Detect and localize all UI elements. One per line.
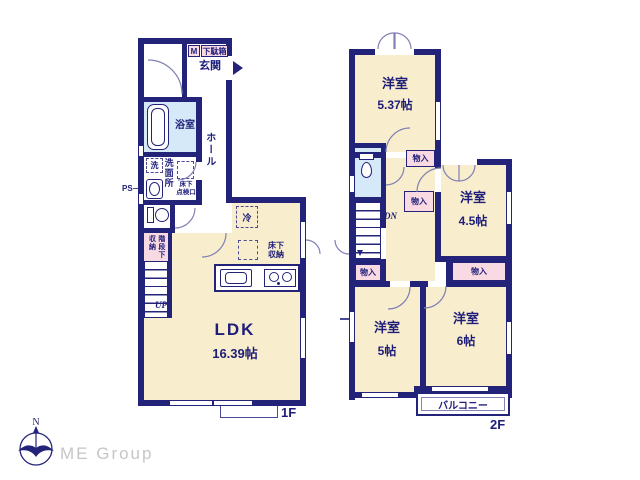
stove-knob (277, 282, 280, 285)
bedroom-45-size: 4.5帖 (445, 214, 501, 228)
hall-label: ホール (203, 132, 215, 168)
window (506, 322, 512, 354)
wall (138, 38, 144, 406)
entrance-label: 玄関 (190, 60, 230, 73)
bathtub (147, 104, 169, 150)
meter-box-label: M (191, 47, 198, 56)
closet-label: 物入 (471, 266, 487, 277)
window (138, 194, 144, 204)
understair-storage-label: 階段下 収納 (147, 235, 166, 259)
floorplan-page: 洗 冷 M 下駄箱 玄関 浴室 洗面所 床下 点検口 PS ホール 階段下 収納… (0, 0, 640, 480)
stairs-up-label: UP (155, 300, 167, 311)
casement-window-opening (375, 49, 414, 55)
entrance-step (220, 406, 278, 418)
ldk-label: LDK (195, 320, 275, 340)
meter-box: M (188, 45, 200, 57)
shoe-box-label: 下駄箱 (203, 46, 227, 57)
underfloor-storage-box (238, 240, 258, 260)
sink-bowl (149, 182, 160, 196)
shoe-box: 下駄箱 (201, 45, 228, 57)
stairs-down-label: DN (384, 211, 397, 222)
wall (138, 152, 202, 157)
vanity-sink (146, 179, 163, 199)
closet-label: 物入 (413, 153, 429, 164)
window (300, 222, 306, 258)
wall (182, 44, 187, 97)
bathtub-inner (151, 108, 165, 146)
floor-hatch-box (177, 161, 194, 179)
casement-window-opening (441, 159, 477, 165)
window (300, 318, 306, 358)
toilet-tank (147, 207, 154, 223)
stove-burner (282, 272, 292, 282)
ps-tick (133, 188, 138, 189)
washer-space: 洗 (146, 158, 163, 173)
bedroom-6-name: 洋室 (438, 311, 494, 326)
bedroom-537-size: 5.37帖 (363, 98, 427, 112)
wall (168, 233, 172, 318)
exterior-tick (340, 318, 349, 320)
watermark-brand: ME Group (60, 444, 153, 464)
wall (381, 264, 386, 281)
closet: 物入 (404, 191, 434, 212)
door-opening (390, 281, 410, 287)
bathroom-label: 浴室 (170, 120, 200, 132)
staircase-down (355, 202, 381, 259)
closet-label: 物入 (360, 267, 376, 278)
balcony: バルコニー (416, 392, 510, 416)
door-opening (428, 281, 446, 287)
closet-label: 物入 (411, 196, 427, 207)
bedroom-537-name: 洋室 (365, 76, 425, 91)
floor2-label: 2F (490, 417, 505, 432)
floor-hatch-label: 床下 点検口 (168, 181, 204, 196)
bedroom-5-name: 洋室 (357, 320, 417, 335)
wall (144, 97, 202, 102)
washer-label: 洗 (151, 160, 159, 171)
bedroom-5-area (355, 287, 420, 392)
window (506, 192, 512, 224)
toilet-tank (359, 153, 374, 160)
window (138, 146, 144, 156)
bedroom-5-size: 5帖 (357, 344, 417, 358)
wall (226, 197, 306, 203)
window (362, 392, 398, 398)
window (349, 312, 355, 342)
window (170, 400, 212, 406)
pipe-space-label: PS (122, 184, 133, 193)
toilet-bowl (361, 162, 372, 178)
door-opening (435, 168, 441, 192)
underfloor-storage-label: 床下 収納 (258, 241, 294, 260)
closet: 物入 (355, 264, 381, 281)
stove-burner (269, 272, 279, 282)
compass-north-label: N (32, 417, 39, 428)
ldk-size-label: 16.39帖 (190, 346, 280, 361)
bedroom-45-name: 洋室 (445, 190, 501, 205)
compass-icon: N (10, 413, 62, 471)
closet: 物入 (406, 150, 435, 167)
balcony-label: バルコニー (421, 397, 505, 411)
door-swing-arcs (0, 0, 640, 480)
toilet-bowl (155, 208, 169, 222)
window (435, 102, 441, 140)
bedroom-45-area (441, 165, 506, 256)
kitchen-sink (220, 269, 252, 287)
closet: 物入 (452, 262, 506, 281)
floor1-label: 1F (281, 405, 296, 420)
entrance-door-icon (233, 61, 243, 75)
wall (420, 281, 426, 392)
fridge-label: 冷 (242, 211, 251, 224)
refrigerator-space: 冷 (236, 206, 258, 228)
kitchen-sink-basin (225, 272, 247, 284)
kitchen-stove (264, 269, 296, 287)
bedroom-6-size: 6帖 (438, 334, 494, 348)
window (349, 176, 355, 192)
door-opening (196, 162, 202, 180)
